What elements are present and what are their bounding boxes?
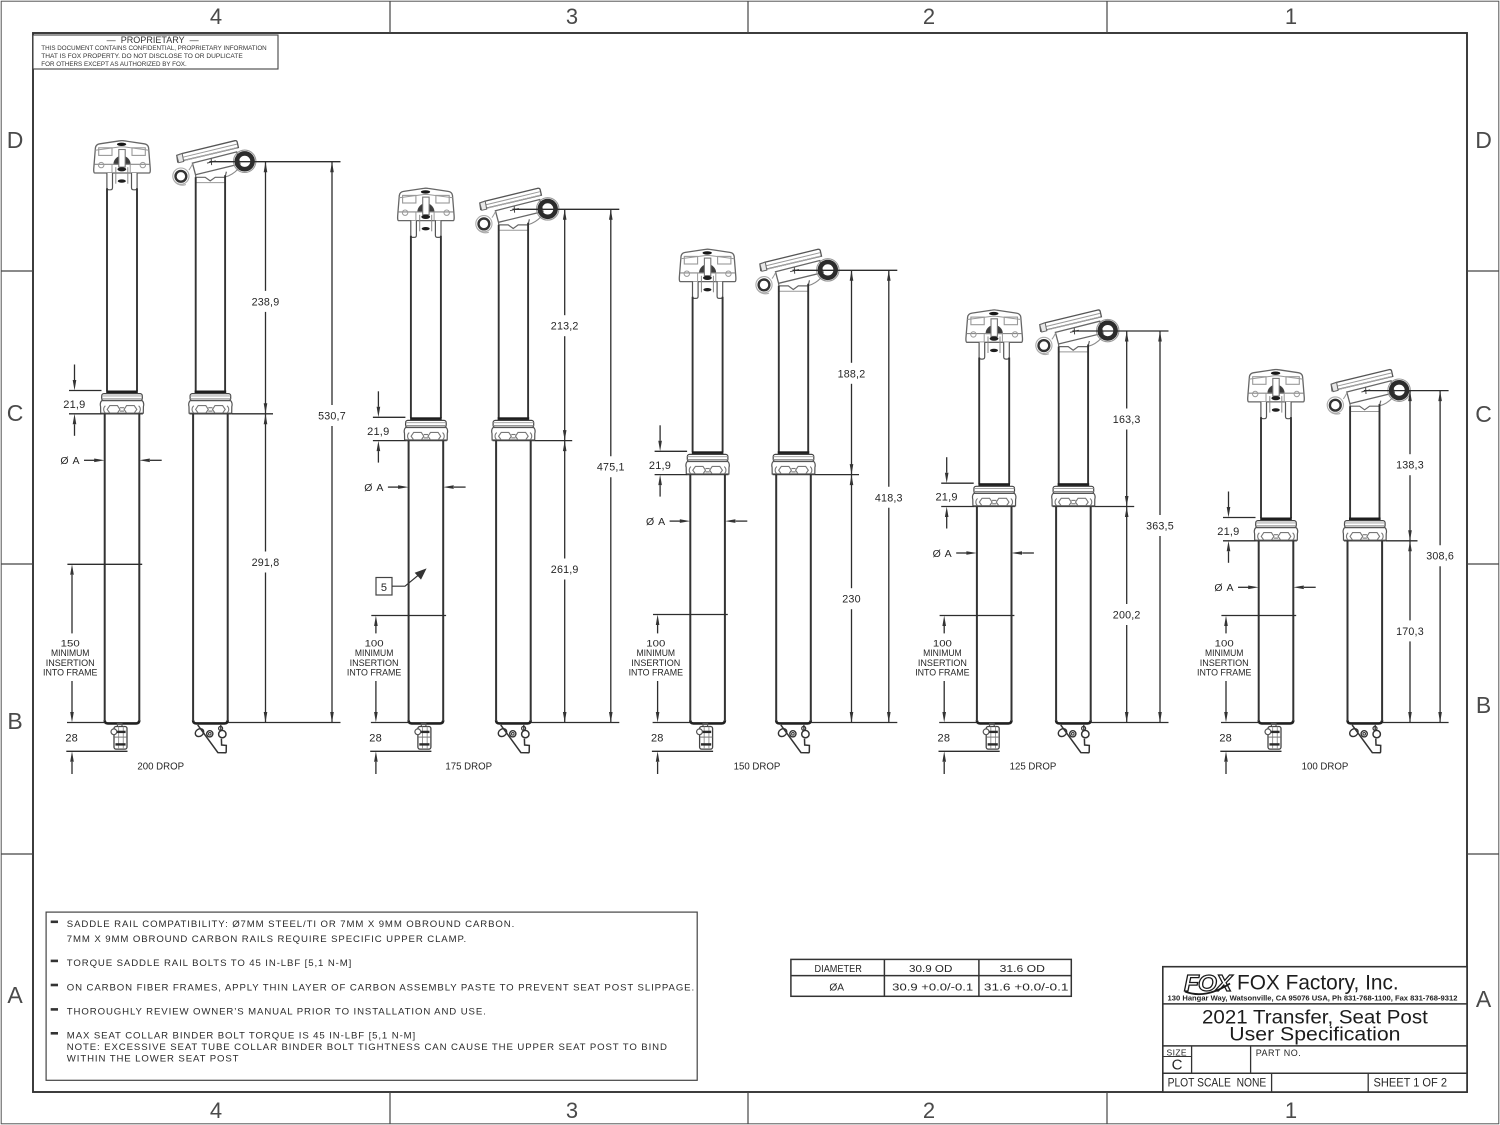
svg-text:170,3: 170,3: [1396, 626, 1424, 638]
svg-text:NOTE: EXCESSIVE SEAT TUBE COLL: NOTE: EXCESSIVE SEAT TUBE COLLAR BINDER …: [67, 1042, 668, 1053]
svg-text:31.6 +0.0/-0.1: 31.6 +0.0/-0.1: [984, 981, 1069, 993]
svg-text:150 DROP: 150 DROP: [734, 760, 781, 772]
svg-text:31.6 OD: 31.6 OD: [1000, 964, 1045, 975]
svg-text:200,2: 200,2: [1113, 610, 1141, 622]
svg-text:2: 2: [923, 4, 935, 29]
svg-text:418,3: 418,3: [875, 492, 903, 504]
svg-text:3: 3: [566, 4, 578, 29]
svg-text:Ø A: Ø A: [646, 516, 666, 528]
svg-text:163,3: 163,3: [1113, 414, 1141, 426]
svg-text:SHEET 1 OF 2: SHEET 1 OF 2: [1374, 1076, 1448, 1090]
svg-text:21,9: 21,9: [63, 399, 85, 411]
svg-text:213,2: 213,2: [551, 321, 579, 333]
svg-text:4: 4: [210, 1098, 222, 1123]
svg-text:28: 28: [651, 732, 664, 744]
svg-text:21,9: 21,9: [935, 492, 957, 504]
svg-text:B: B: [7, 708, 22, 734]
svg-text:B: B: [1476, 692, 1491, 718]
svg-text:100 DROP: 100 DROP: [1302, 760, 1349, 772]
svg-text:7MM X 9MM OBROUND CARBON RAILS: 7MM X 9MM OBROUND CARBON RAILS REQUIRE S…: [67, 934, 467, 945]
svg-text:Ø A: Ø A: [60, 455, 80, 467]
svg-text:363,5: 363,5: [1146, 521, 1174, 533]
svg-text:Ø A: Ø A: [364, 482, 384, 494]
svg-text:INTO FRAME: INTO FRAME: [1197, 667, 1251, 678]
svg-text:138,3: 138,3: [1396, 460, 1424, 472]
svg-text:A: A: [7, 982, 23, 1008]
svg-text:5: 5: [381, 582, 387, 594]
svg-text:21,9: 21,9: [649, 460, 671, 472]
svg-text:FOX Factory, Inc.: FOX Factory, Inc.: [1237, 972, 1399, 995]
svg-text:ØA: ØA: [829, 982, 844, 993]
svg-text:THAT IS FOX PROPERTY. DO NOT: THAT IS FOX PROPERTY. DO NOT DISCLOSE TO…: [41, 53, 242, 60]
svg-text:188,2: 188,2: [838, 368, 866, 380]
svg-text:User Specification: User Specification: [1229, 1025, 1400, 1046]
svg-text:C: C: [7, 400, 24, 426]
svg-text:WITHIN THE LOWER SEAT POST: WITHIN THE LOWER SEAT POST: [67, 1054, 240, 1065]
svg-text:PLOT SCALE NONE: PLOT SCALE NONE: [1168, 1076, 1267, 1090]
svg-text:28: 28: [65, 732, 78, 744]
svg-text:1: 1: [1285, 1098, 1297, 1123]
svg-text:530,7: 530,7: [318, 411, 346, 423]
svg-text:INTO FRAME: INTO FRAME: [43, 667, 97, 678]
svg-text:21,9: 21,9: [1217, 526, 1239, 538]
svg-text:ON CARBON FIBER FRAMES, APPLY: ON CARBON FIBER FRAMES, APPLY THIN LAYER…: [67, 982, 695, 993]
svg-text:30.9 OD: 30.9 OD: [909, 964, 952, 975]
svg-text:30.9 +0.0/-0.1: 30.9 +0.0/-0.1: [892, 981, 973, 993]
svg-text:D: D: [7, 127, 24, 153]
svg-text:INTO FRAME: INTO FRAME: [347, 667, 401, 678]
svg-text:125 DROP: 125 DROP: [1010, 760, 1057, 772]
svg-text:4: 4: [210, 4, 222, 29]
svg-text:28: 28: [369, 732, 382, 744]
svg-text:261,9: 261,9: [551, 564, 579, 576]
svg-text:Ø A: Ø A: [1214, 582, 1234, 594]
svg-text:238,9: 238,9: [252, 296, 280, 308]
svg-text:MAX SEAT COLLAR BINDER BOLT TO: MAX SEAT COLLAR BINDER BOLT TORQUE IS 45…: [67, 1031, 416, 1042]
svg-text:28: 28: [938, 732, 951, 744]
svg-text:C: C: [1475, 401, 1492, 427]
svg-text:28: 28: [1219, 732, 1232, 744]
svg-text:INTO FRAME: INTO FRAME: [915, 667, 969, 678]
svg-text:200 DROP: 200 DROP: [137, 760, 184, 772]
svg-text:— PROPRIETARY —: — PROPRIETARY —: [107, 35, 199, 45]
svg-text:Ø A: Ø A: [933, 548, 953, 560]
svg-text:130 Hangar Way, Watsonville, C: 130 Hangar Way, Watsonville, CA 95076 US…: [1168, 995, 1458, 1002]
svg-text:3: 3: [566, 1098, 578, 1123]
svg-text:291,8: 291,8: [252, 557, 280, 569]
svg-text:175 DROP: 175 DROP: [445, 760, 492, 772]
svg-text:FOR OTHERS EXCEPT AS AUTHORIZE: FOR OTHERS EXCEPT AS AUTHORIZED BY FOX.: [41, 61, 187, 68]
svg-text:C: C: [1172, 1057, 1183, 1074]
svg-text:SADDLE RAIL COMPATIBILITY: Ø7M: SADDLE RAIL COMPATIBILITY: Ø7MM STEEL/TI…: [67, 919, 515, 930]
svg-text:D: D: [1475, 127, 1492, 153]
svg-text:308,6: 308,6: [1426, 551, 1454, 563]
svg-text:TORQUE SADDLE RAIL BOLTS TO 45: TORQUE SADDLE RAIL BOLTS TO 45 IN-LBF [5…: [67, 958, 352, 969]
svg-text:A: A: [1476, 986, 1492, 1012]
svg-text:THIS DOCUMENT CONTAINS CONFIDE: THIS DOCUMENT CONTAINS CONFIDENTIAL, PRO…: [41, 45, 267, 52]
svg-text:2: 2: [923, 1098, 935, 1123]
svg-text:PART NO.: PART NO.: [1256, 1048, 1302, 1058]
svg-text:230: 230: [842, 594, 861, 606]
svg-text:475,1: 475,1: [597, 462, 625, 474]
svg-text:21,9: 21,9: [367, 426, 389, 438]
svg-text:INTO FRAME: INTO FRAME: [629, 667, 683, 678]
svg-text:THOROUGHLY REVIEW OWNER’S MANU: THOROUGHLY REVIEW OWNER’S MANUAL PRIOR T…: [67, 1007, 487, 1018]
svg-text:DIAMETER: DIAMETER: [815, 964, 862, 975]
svg-text:1: 1: [1285, 4, 1297, 29]
